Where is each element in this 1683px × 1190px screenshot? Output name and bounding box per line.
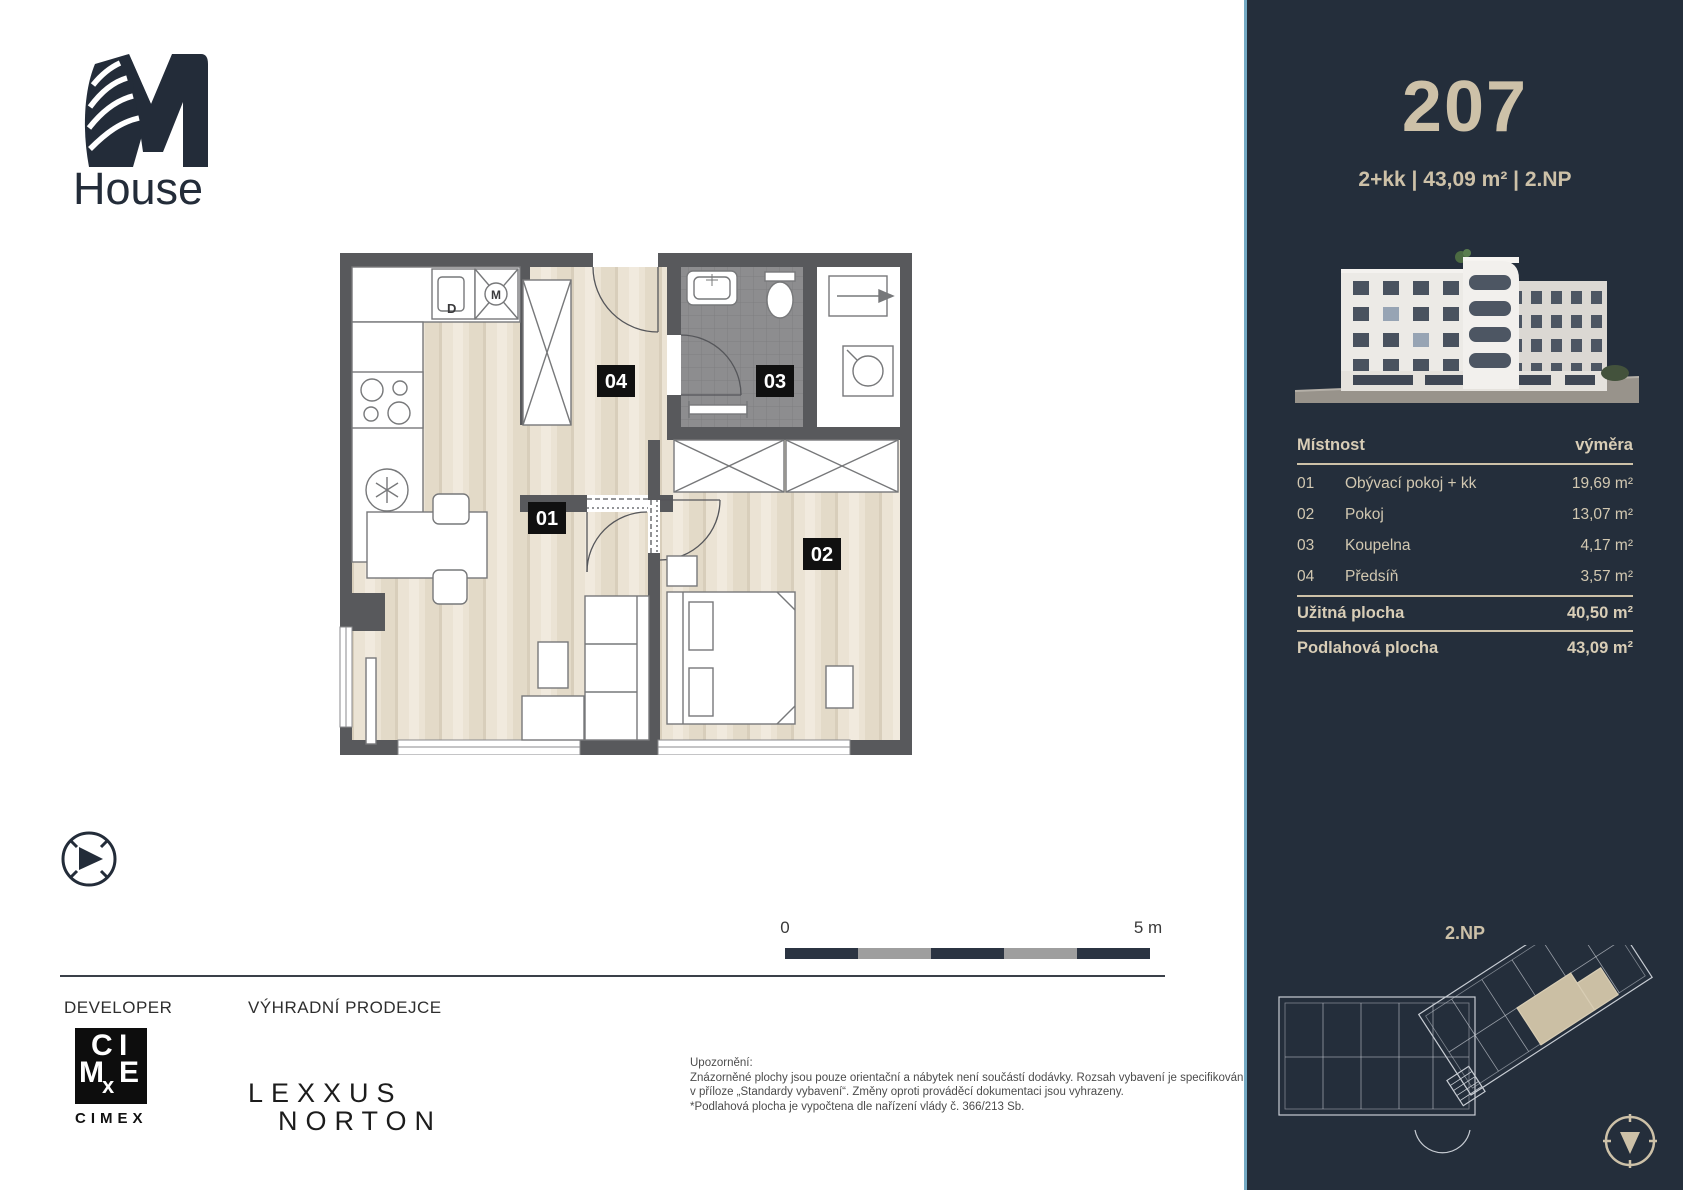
- usable-area-row: Užitná plocha 40,50 m²: [1297, 595, 1633, 630]
- room-02-label: 02: [811, 544, 833, 566]
- disclaimer-title: Upozornění:: [690, 1056, 1243, 1071]
- col-room: Místnost: [1297, 436, 1365, 455]
- col-area: výměra: [1575, 436, 1633, 455]
- unit-specs: 2+kk | 43,09 m² | 2.NP: [1247, 168, 1683, 192]
- room-name: Předsíň: [1345, 568, 1398, 586]
- footer-divider: [60, 975, 1165, 977]
- scale-bar: [785, 948, 1150, 959]
- usable-area-value: 40,50 m²: [1567, 604, 1633, 623]
- cimex-letter-m: M: [79, 1058, 104, 1088]
- room-table: Místnost výměra 01 Obývací pokoj + kk 19…: [1297, 436, 1633, 665]
- brochure-page: House: [0, 0, 1683, 1190]
- room-area: 13,07 m²: [1572, 506, 1633, 524]
- dishwasher-label: D: [447, 301, 456, 316]
- room-num: 03: [1297, 537, 1345, 555]
- brand-name: House: [73, 163, 203, 215]
- developer-label: DEVELOPER: [64, 998, 172, 1018]
- room-01-label: 01: [536, 508, 558, 530]
- room-num: 02: [1297, 506, 1345, 524]
- room-area: 19,69 m²: [1572, 475, 1633, 493]
- seller-label: VÝHRADNÍ PRODEJCE: [248, 998, 442, 1018]
- floor-area-value: 43,09 m²: [1567, 639, 1633, 658]
- room-num: 01: [1297, 475, 1345, 493]
- lexxus-norton-logo-line2: NORTON: [278, 1106, 442, 1137]
- north-compass-icon: [58, 828, 120, 890]
- sidebar: 207 2+kk | 43,09 m² | 2.NP: [1244, 0, 1683, 1190]
- room-04-label: 04: [605, 371, 628, 393]
- floor-plan: D M: [337, 250, 915, 755]
- cimex-wordmark: CIMEX: [75, 1110, 148, 1127]
- room-area: 4,17 m²: [1580, 537, 1633, 555]
- mhouse-logo-icon: [75, 52, 210, 172]
- building-render: [1295, 245, 1639, 403]
- mini-floor-label: 2.NP: [1247, 923, 1683, 944]
- usable-area-label: Užitná plocha: [1297, 604, 1404, 623]
- room-num: 04: [1297, 568, 1345, 586]
- cimex-logo: C I M E x: [75, 1028, 147, 1104]
- lexxus-norton-logo-line1: LEXXUS: [248, 1078, 403, 1109]
- hall-wardrobe: [523, 280, 571, 425]
- room-03-label: 03: [764, 371, 786, 393]
- disclaimer-line: v příloze „Standardy vybavení“. Změny op…: [690, 1085, 1243, 1100]
- room-name: Obývací pokoj + kk: [1345, 475, 1476, 493]
- disclaimer-line: *Podlahová plocha je vypočtena dle naříz…: [690, 1100, 1243, 1115]
- scale-start-label: 0: [755, 918, 815, 938]
- unit-number: 207: [1247, 66, 1683, 148]
- room-name: Koupelna: [1345, 537, 1411, 555]
- disclaimer: Upozornění: Znázorněné plochy jsou pouze…: [690, 1056, 1243, 1114]
- table-row: 02 Pokoj 13,07 m²: [1297, 499, 1633, 530]
- floor-area-row: Podlahová plocha 43,09 m²: [1297, 630, 1633, 665]
- cimex-letter-x: x: [102, 1075, 114, 1097]
- table-row: 03 Koupelna 4,17 m²: [1297, 530, 1633, 561]
- room-table-header: Místnost výměra: [1297, 436, 1633, 465]
- table-row: 01 Obývací pokoj + kk 19,69 m²: [1297, 468, 1633, 499]
- washer-label: M: [491, 288, 501, 302]
- disclaimer-line: Znázorněné plochy jsou pouze orientační …: [690, 1071, 1243, 1086]
- scale-end-label: 5 m: [1118, 918, 1178, 938]
- floor-area-label: Podlahová plocha: [1297, 639, 1438, 658]
- cimex-letter-e: E: [119, 1058, 139, 1088]
- room-name: Pokoj: [1345, 506, 1384, 524]
- room-area: 3,57 m²: [1580, 568, 1633, 586]
- table-row: 04 Předsíň 3,57 m²: [1297, 561, 1633, 592]
- south-compass-icon: [1601, 1112, 1659, 1170]
